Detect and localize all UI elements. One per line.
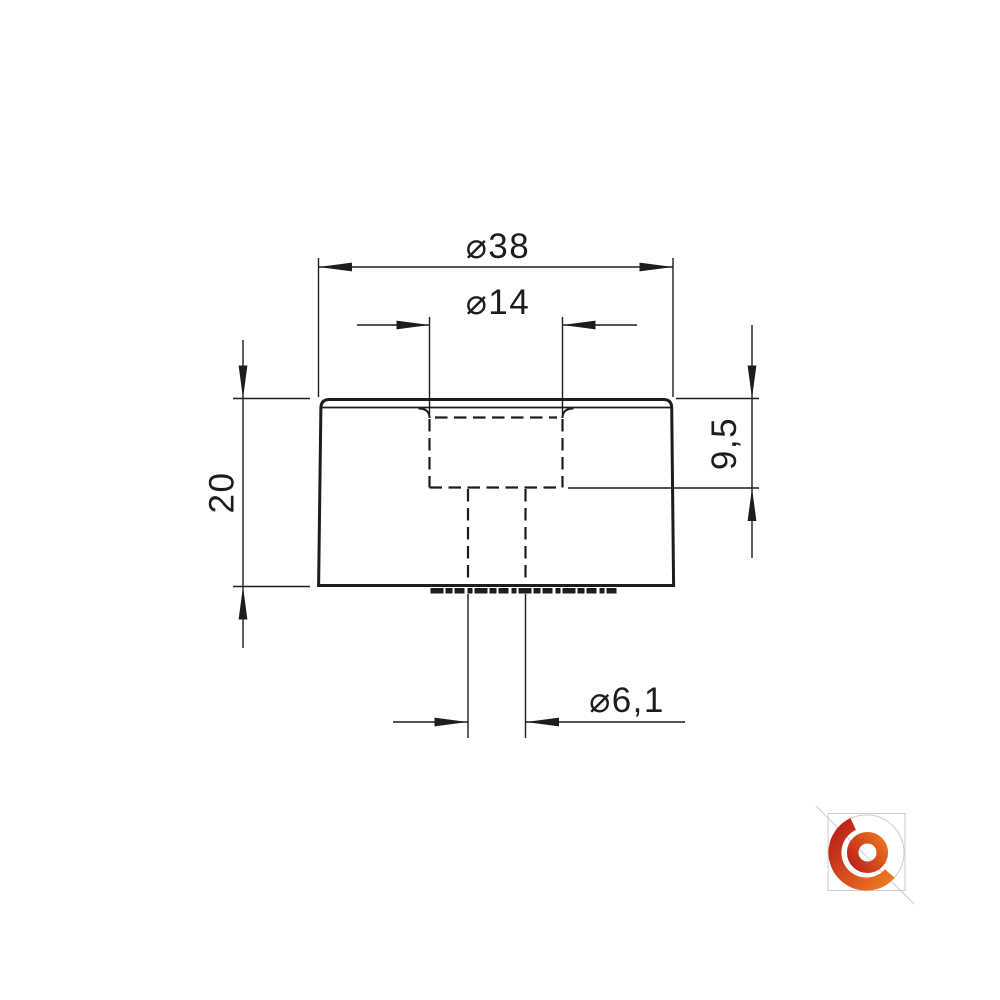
dimension-labels: ⌀38 ⌀14 20 9,5 ⌀6,1 — [203, 227, 745, 720]
drawing-canvas: ⌀38 ⌀14 20 9,5 ⌀6,1 — [0, 0, 1000, 1000]
brand-logo — [816, 806, 914, 904]
arrow-d61-left — [435, 718, 468, 727]
body-outline — [319, 400, 674, 586]
label-hole-diameter: ⌀6,1 — [589, 681, 665, 720]
arrow-d38-left — [319, 263, 353, 272]
arrow-d14-right — [563, 321, 596, 330]
foot-front-view — [233, 258, 759, 738]
label-height: 20 — [203, 472, 242, 514]
arrow-d38-right — [640, 263, 674, 272]
technical-drawing-page: ⌀38 ⌀14 20 9,5 ⌀6,1 — [0, 0, 1000, 1000]
pocket-lip-arc-right — [563, 409, 574, 419]
arrow-d14-left — [397, 321, 430, 330]
label-outer-diameter: ⌀38 — [466, 227, 531, 266]
logo-inner-ring — [853, 838, 883, 868]
extension-lines — [233, 258, 759, 738]
dimension-arrowheads — [239, 263, 757, 727]
pocket-lip-arc-left — [419, 409, 430, 419]
arrow-depth95-bottom — [748, 488, 757, 521]
arrow-h20-bottom — [239, 587, 248, 620]
arrow-d61-right — [526, 718, 559, 727]
arrow-h20-top — [239, 366, 248, 399]
label-insert-diameter: ⌀14 — [466, 283, 531, 322]
hidden-pocket-lines — [430, 418, 563, 585]
label-insert-depth: 9,5 — [705, 417, 744, 470]
arrow-depth95-top — [748, 366, 757, 399]
